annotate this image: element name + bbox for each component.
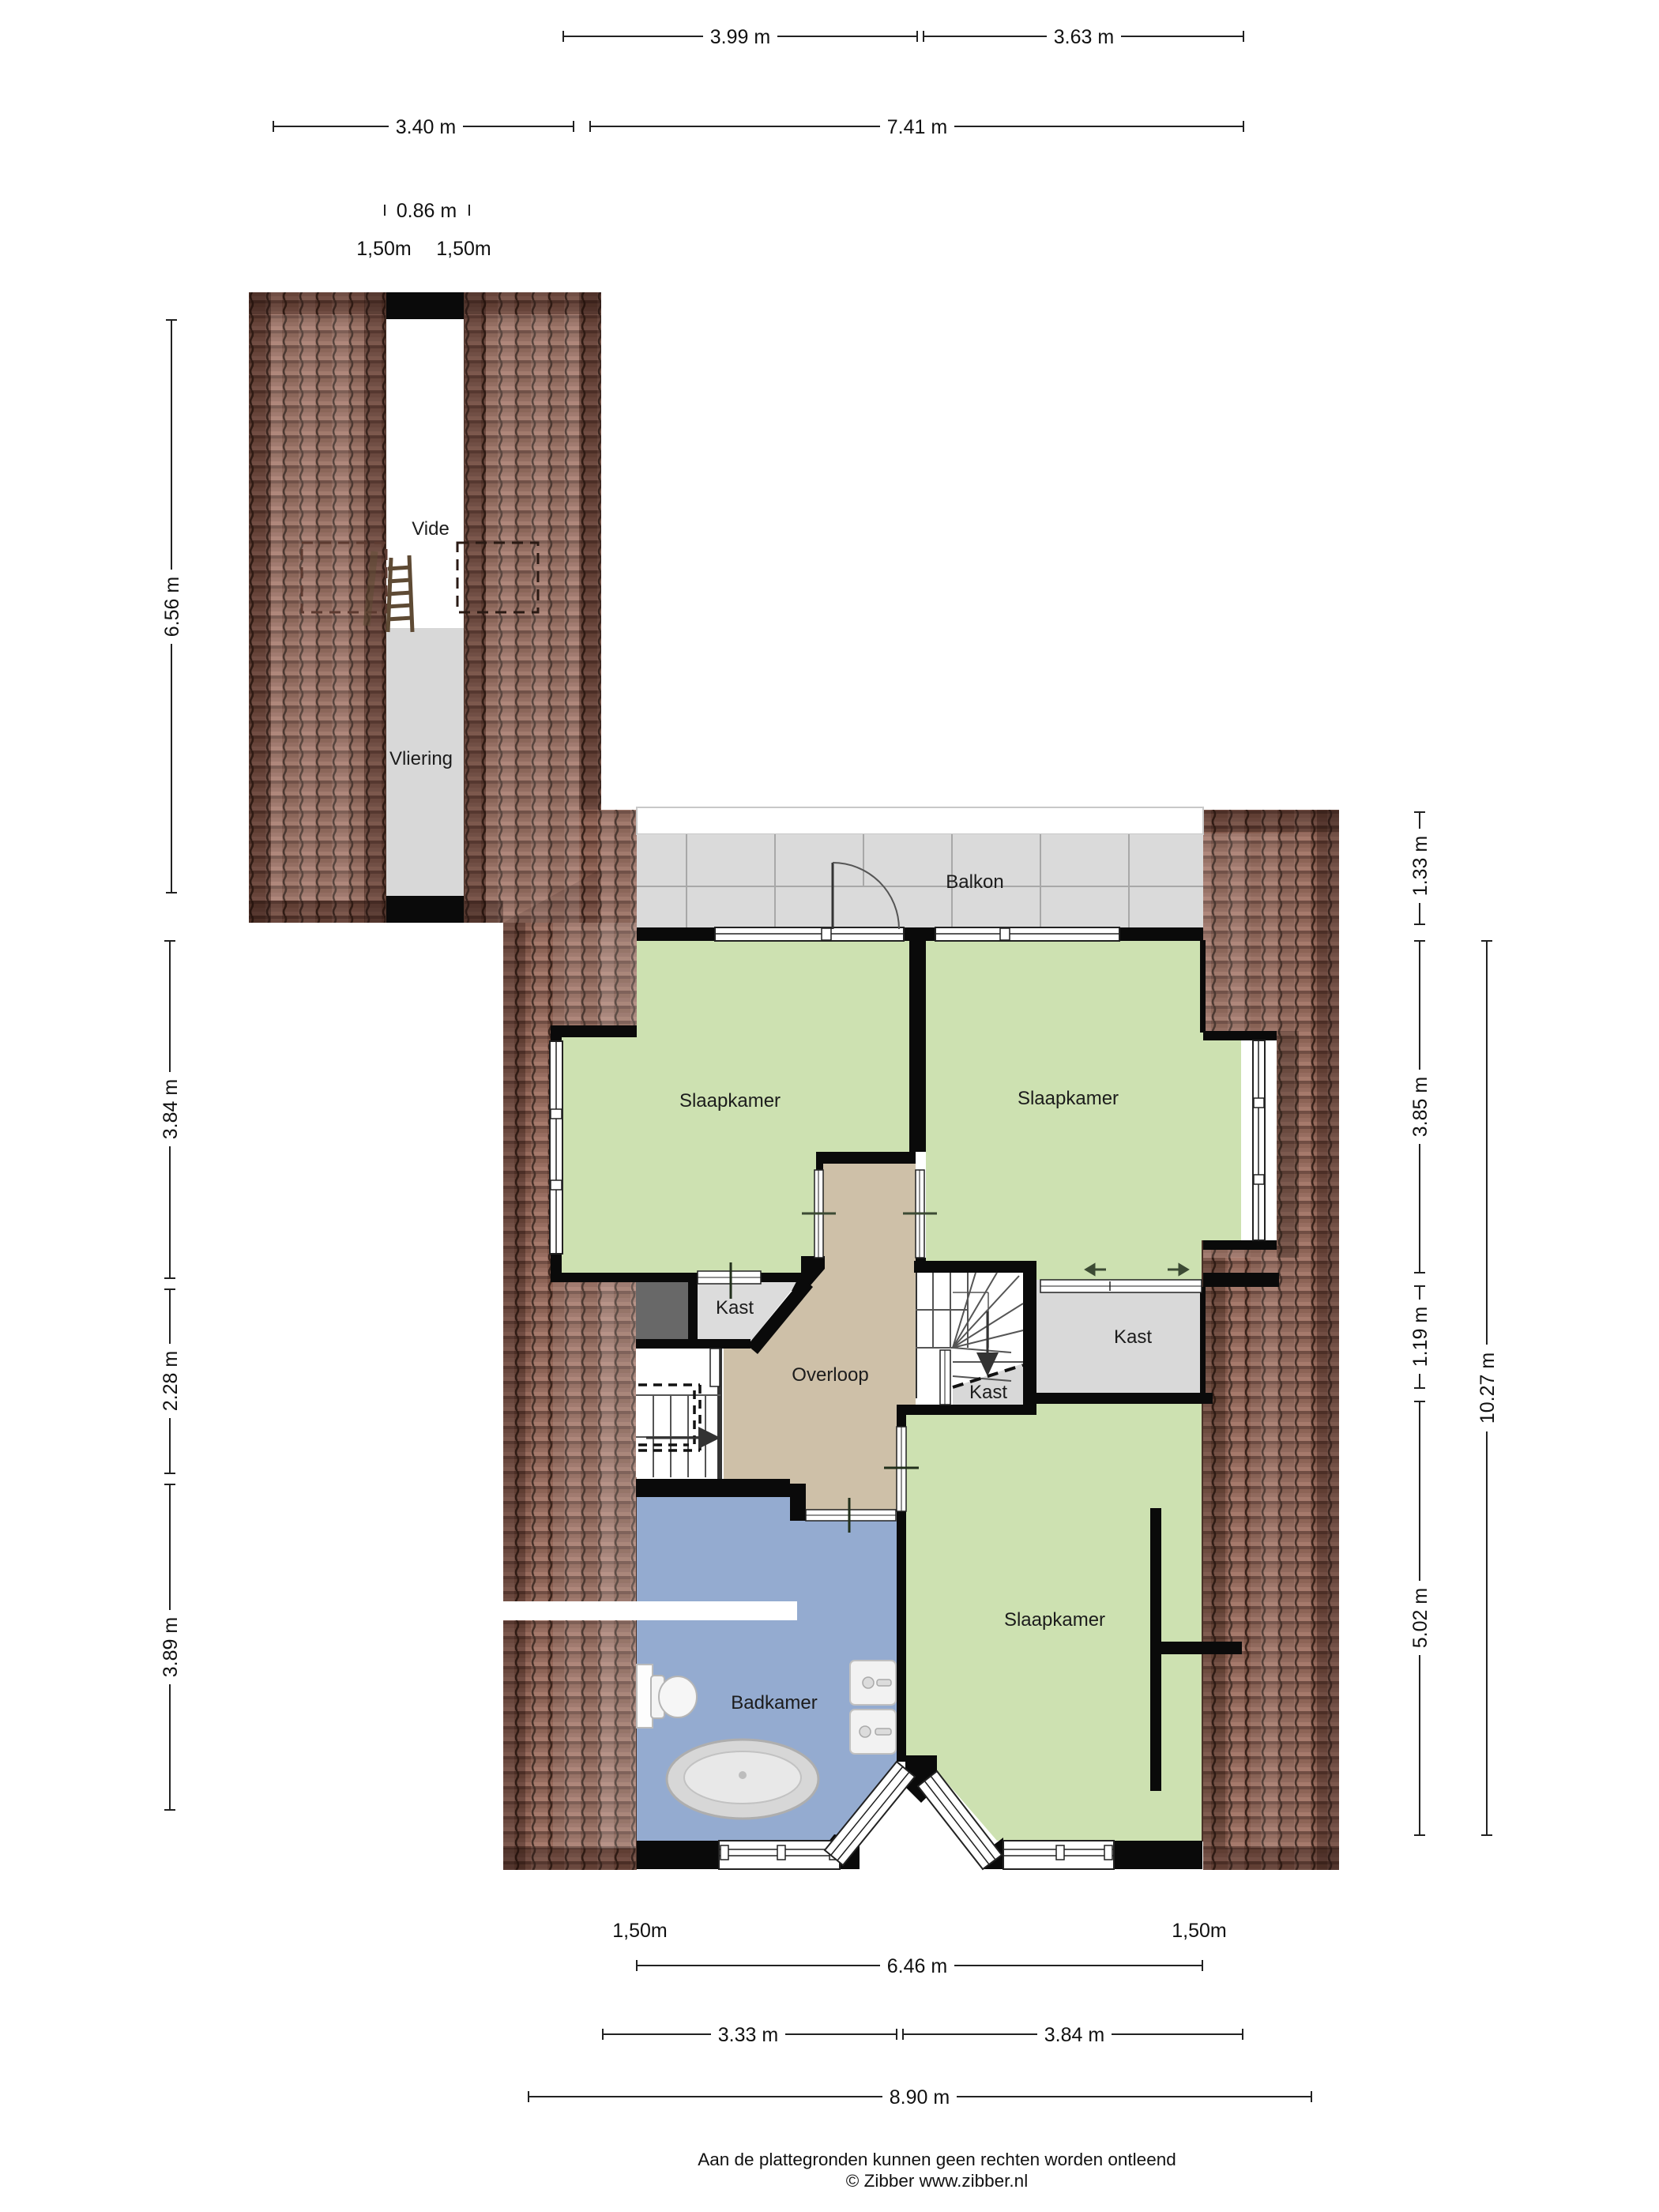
svg-text:7.41 m: 7.41 m xyxy=(887,116,947,138)
svg-text:Kast: Kast xyxy=(716,1297,754,1319)
svg-text:© Zibber www.zibber.nl: © Zibber www.zibber.nl xyxy=(846,2171,1028,2191)
svg-text:6.46 m: 6.46 m xyxy=(887,1955,947,1977)
svg-text:Kast: Kast xyxy=(1114,1326,1152,1348)
svg-text:Slaapkamer: Slaapkamer xyxy=(679,1090,781,1112)
svg-text:0.86 m: 0.86 m xyxy=(397,200,457,222)
svg-text:3.84 m: 3.84 m xyxy=(160,1079,182,1139)
svg-text:1,50m: 1,50m xyxy=(356,238,411,260)
svg-text:Badkamer: Badkamer xyxy=(731,1692,817,1714)
svg-text:8.90 m: 8.90 m xyxy=(890,2086,950,2109)
svg-text:Vide: Vide xyxy=(412,518,450,540)
svg-text:Vliering: Vliering xyxy=(389,748,453,769)
svg-text:3.89 m: 3.89 m xyxy=(160,1617,182,1677)
svg-text:3.85 m: 3.85 m xyxy=(1409,1077,1431,1137)
svg-text:Slaapkamer: Slaapkamer xyxy=(1018,1088,1119,1109)
svg-text:5.02 m: 5.02 m xyxy=(1409,1588,1431,1648)
svg-text:3.33 m: 3.33 m xyxy=(718,2024,778,2046)
svg-text:Aan de plattegronden kunnen ge: Aan de plattegronden kunnen geen rechten… xyxy=(698,2150,1176,2169)
svg-text:Overloop: Overloop xyxy=(792,1364,868,1386)
svg-text:3.63 m: 3.63 m xyxy=(1054,26,1114,48)
svg-text:3.99 m: 3.99 m xyxy=(710,26,770,48)
svg-text:10.27 m: 10.27 m xyxy=(1477,1352,1499,1424)
svg-text:2.28 m: 2.28 m xyxy=(160,1351,182,1411)
svg-text:3.40 m: 3.40 m xyxy=(396,116,456,138)
svg-text:1,50m: 1,50m xyxy=(1172,1920,1226,1942)
svg-text:1.19 m: 1.19 m xyxy=(1409,1307,1431,1367)
svg-text:1,50m: 1,50m xyxy=(436,238,491,260)
svg-text:Balkon: Balkon xyxy=(946,871,1003,893)
svg-text:Kast: Kast xyxy=(969,1382,1007,1403)
svg-text:3.84 m: 3.84 m xyxy=(1044,2024,1104,2046)
svg-text:6.56 m: 6.56 m xyxy=(161,577,183,637)
svg-text:1.33 m: 1.33 m xyxy=(1409,836,1431,896)
svg-text:1,50m: 1,50m xyxy=(612,1920,667,1942)
svg-text:Slaapkamer: Slaapkamer xyxy=(1004,1609,1105,1631)
